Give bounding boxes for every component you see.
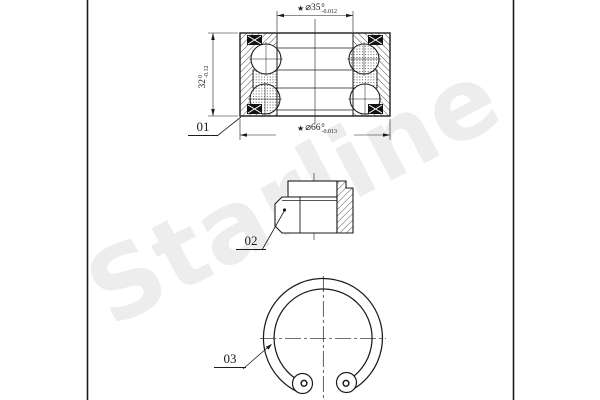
nut-drawing: [262, 173, 353, 250]
arrowhead: [211, 33, 215, 40]
part-label-02: 02: [236, 234, 266, 250]
star-icon: ★: [297, 125, 304, 133]
leader-line-01: [217, 117, 241, 136]
nut-hex-face: [275, 197, 337, 233]
nut-section-hatched: [337, 181, 353, 233]
dimension-bore: ★ ⌀35 0 -0.012: [277, 2, 357, 15]
snap-ring-hole-right: [343, 380, 349, 386]
snap-ring-centerlines: [260, 276, 386, 400]
technical-drawing-page: Starline: [0, 0, 600, 400]
od-tolerance: 0 -0.013: [321, 123, 337, 135]
arrowhead: [211, 109, 215, 116]
part-label-03: 03: [214, 352, 246, 368]
arrowhead: [240, 133, 247, 137]
dimension-width: 32 0 -0.12: [196, 58, 212, 96]
snap-ring-body: [263, 278, 382, 392]
width-value: 32: [199, 79, 209, 89]
snap-ring-hole-left: [301, 380, 307, 386]
snap-ring-drawing: [243, 276, 386, 400]
bore-tolerance: 0 -0.012: [321, 3, 337, 15]
dimension-outer-diameter: ★ ⌀66 0 -0.013: [276, 122, 358, 136]
drawing-canvas: [0, 0, 600, 400]
tolerance-lower: -0.013: [321, 129, 337, 135]
width-tolerance: 0 -0.12: [198, 66, 210, 79]
bore-value: ⌀35: [305, 4, 320, 14]
od-value: ⌀66: [305, 124, 320, 134]
tolerance-lower: -0.012: [321, 9, 337, 15]
arrowhead: [383, 133, 390, 137]
tolerance-lower: -0.12: [204, 66, 210, 79]
leader-dot-02: [283, 208, 286, 211]
star-icon: ★: [297, 5, 304, 13]
nut-cap-rect: [288, 181, 337, 197]
bearing-drawing: [208, 11, 390, 140]
dimension-lines-width: [208, 33, 238, 116]
part-label-01: 01: [188, 120, 218, 136]
